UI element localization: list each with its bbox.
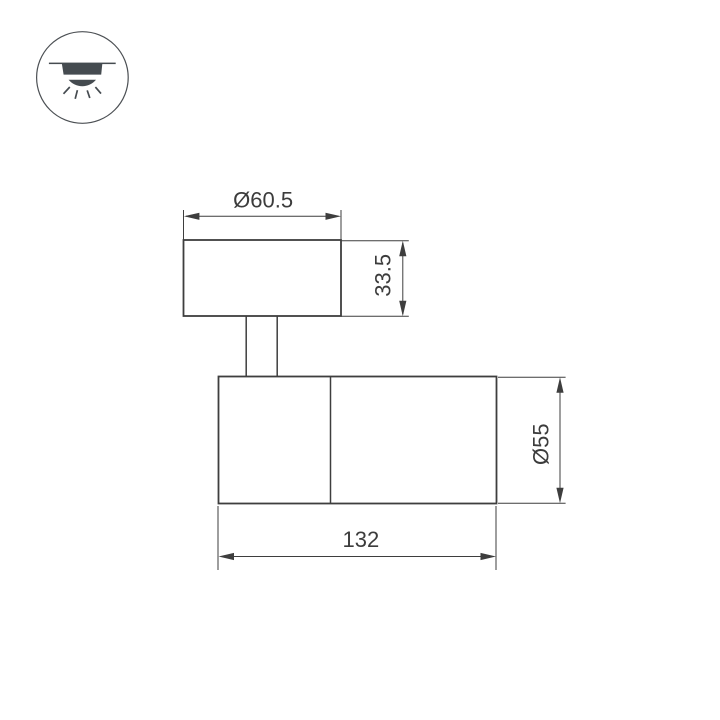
svg-text:33.5: 33.5 [371,254,396,297]
svg-text:Ø60.5: Ø60.5 [233,187,293,212]
svg-text:Ø55: Ø55 [529,423,554,465]
svg-text:132: 132 [343,527,380,552]
